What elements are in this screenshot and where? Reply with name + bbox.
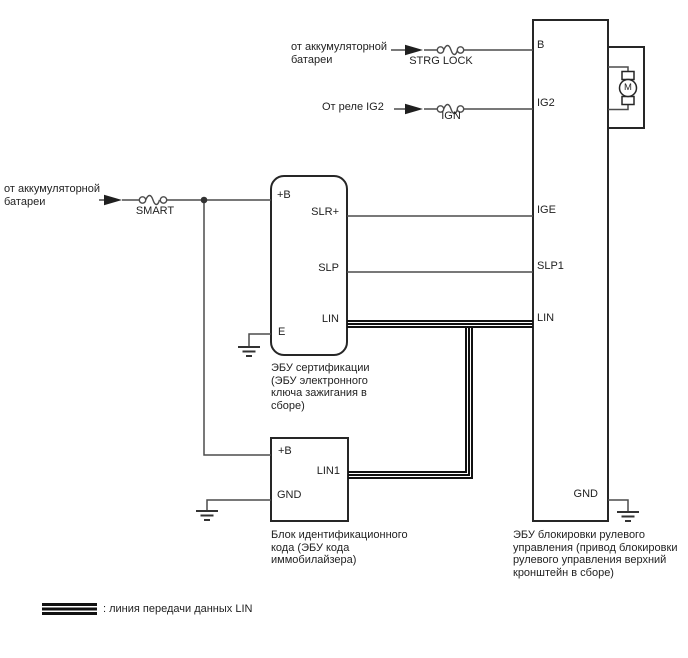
caption-certification-ecu: ЭБУ сертификации (ЭБУ электронного ключа…: [271, 362, 370, 413]
source-battery-left-label: от аккумуляторной батареи: [4, 183, 100, 209]
fuse-ign-label: IGN: [426, 110, 476, 123]
terminal-cert-lin: LIN: [322, 313, 339, 326]
wiring-diagram: от аккумуляторной батареи От реле IG2 от…: [0, 0, 688, 658]
ground-icon: [196, 511, 218, 520]
caption-steering-lock-ecu: ЭБУ блокировки рулевого управления (прив…: [513, 529, 677, 580]
caption-id-code-box: Блок идентификационного кода (ЭБУ кода и…: [271, 529, 408, 567]
wire-gnd-steer: [608, 500, 628, 512]
fuse-smart-label: SMART: [121, 205, 189, 218]
ground-icon: [617, 512, 639, 521]
terminal-cert-plus-b: +B: [277, 189, 291, 202]
wire-e-ground: [249, 334, 271, 347]
terminal-idbox-lin1: LIN1: [317, 465, 340, 478]
terminal-cert-slr: SLR+: [311, 206, 339, 219]
terminal-steer-lin: LIN: [537, 312, 554, 325]
terminal-cert-e: E: [278, 326, 285, 339]
terminal-steer-b: B: [537, 39, 544, 52]
terminal-steer-ig2: IG2: [537, 97, 555, 110]
motor-label: M: [620, 82, 636, 94]
legend-lin-symbol: [42, 603, 97, 615]
fuse-smart-icon: [139, 196, 166, 205]
terminal-idbox-gnd: GND: [277, 489, 301, 502]
wire-gnd-idbox: [207, 500, 271, 511]
arrows: [104, 45, 423, 206]
wire-plus-b-idbox: [204, 200, 271, 455]
terminal-steer-slp1: SLP1: [537, 260, 564, 273]
source-ig2-relay-label: От реле IG2: [322, 101, 384, 114]
terminal-cert-slp: SLP: [318, 262, 339, 275]
arrow-icon: [405, 104, 423, 115]
junction-dot: [201, 197, 208, 204]
terminal-idbox-plus-b: +B: [278, 445, 292, 458]
legend-text: : линия передачи данных LIN: [103, 603, 252, 616]
fuse-strg-lock-icon: [437, 46, 463, 55]
fuse-strg-lock-label: STRG LOCK: [404, 55, 478, 68]
arrow-icon: [104, 195, 122, 206]
ground-icon: [238, 347, 260, 356]
terminal-steer-ige: IGE: [537, 204, 556, 217]
source-battery-top-label: от аккумуляторной батареи: [291, 41, 387, 67]
terminal-steer-gnd: GND: [574, 488, 598, 501]
arrow-icon: [405, 45, 423, 56]
lin-bus-line: [347, 321, 533, 478]
